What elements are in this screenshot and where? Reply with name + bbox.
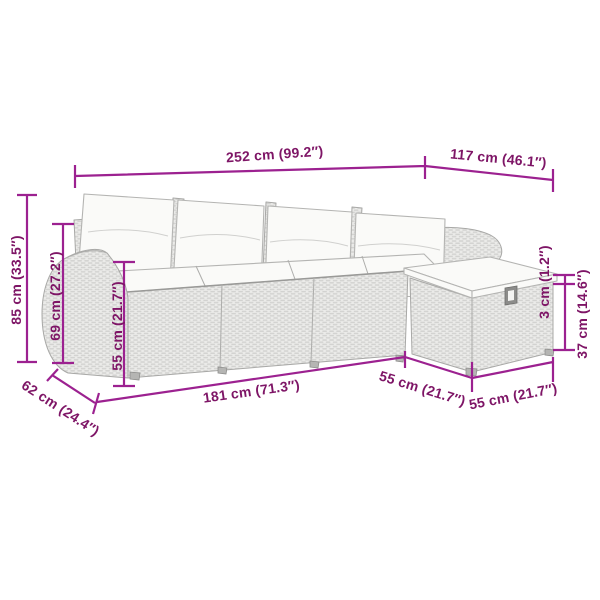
corner-module-width-label: 55 cm (21.7″) — [377, 367, 467, 408]
product-dimension-diagram: 252 cm (99.2″) 117 cm (46.1″) 85 cm (33.… — [0, 0, 600, 600]
footstool-handle-slot — [508, 290, 514, 301]
cushion-thickness-label: 3 cm (1.2″) — [536, 245, 552, 319]
sofa-foot — [218, 367, 227, 374]
footstool-height-label: 37 cm (14.6″) — [574, 269, 590, 358]
seat-depth-label: 62 cm (24.4″) — [19, 377, 103, 439]
sofa-foot — [130, 372, 140, 380]
dimension-chaise-width: 117 cm (46.1″) — [425, 145, 553, 192]
diagram-canvas: 252 cm (99.2″) 117 cm (46.1″) 85 cm (33.… — [0, 0, 600, 600]
seat-height-label: 55 cm (21.7″) — [109, 281, 125, 370]
dimension-seat-depth: 62 cm (24.4″) — [19, 369, 103, 439]
overall-width-label: 252 cm (99.2″) — [225, 143, 323, 166]
dimension-cushion-thickness: 3 cm (1.2″) — [536, 245, 575, 319]
chaise-width-label: 117 cm (46.1″) — [450, 145, 548, 170]
dimension-overall-height: 85 cm (33.5″) — [8, 195, 37, 362]
overall-height-label: 85 cm (33.5″) — [8, 235, 24, 324]
footstool-width-label: 55 cm (21.7″) — [468, 380, 559, 413]
armrest-height-label: 69 cm (27.2″) — [47, 251, 63, 340]
dimension-footstool-height: 37 cm (14.6″) — [553, 269, 590, 358]
sofa-foot — [310, 361, 319, 368]
dimension-overall-width: 252 cm (99.2″) — [75, 143, 425, 188]
sofa-foot — [545, 349, 554, 356]
sofa-front-width-label: 181 cm (71.3″) — [202, 376, 301, 405]
